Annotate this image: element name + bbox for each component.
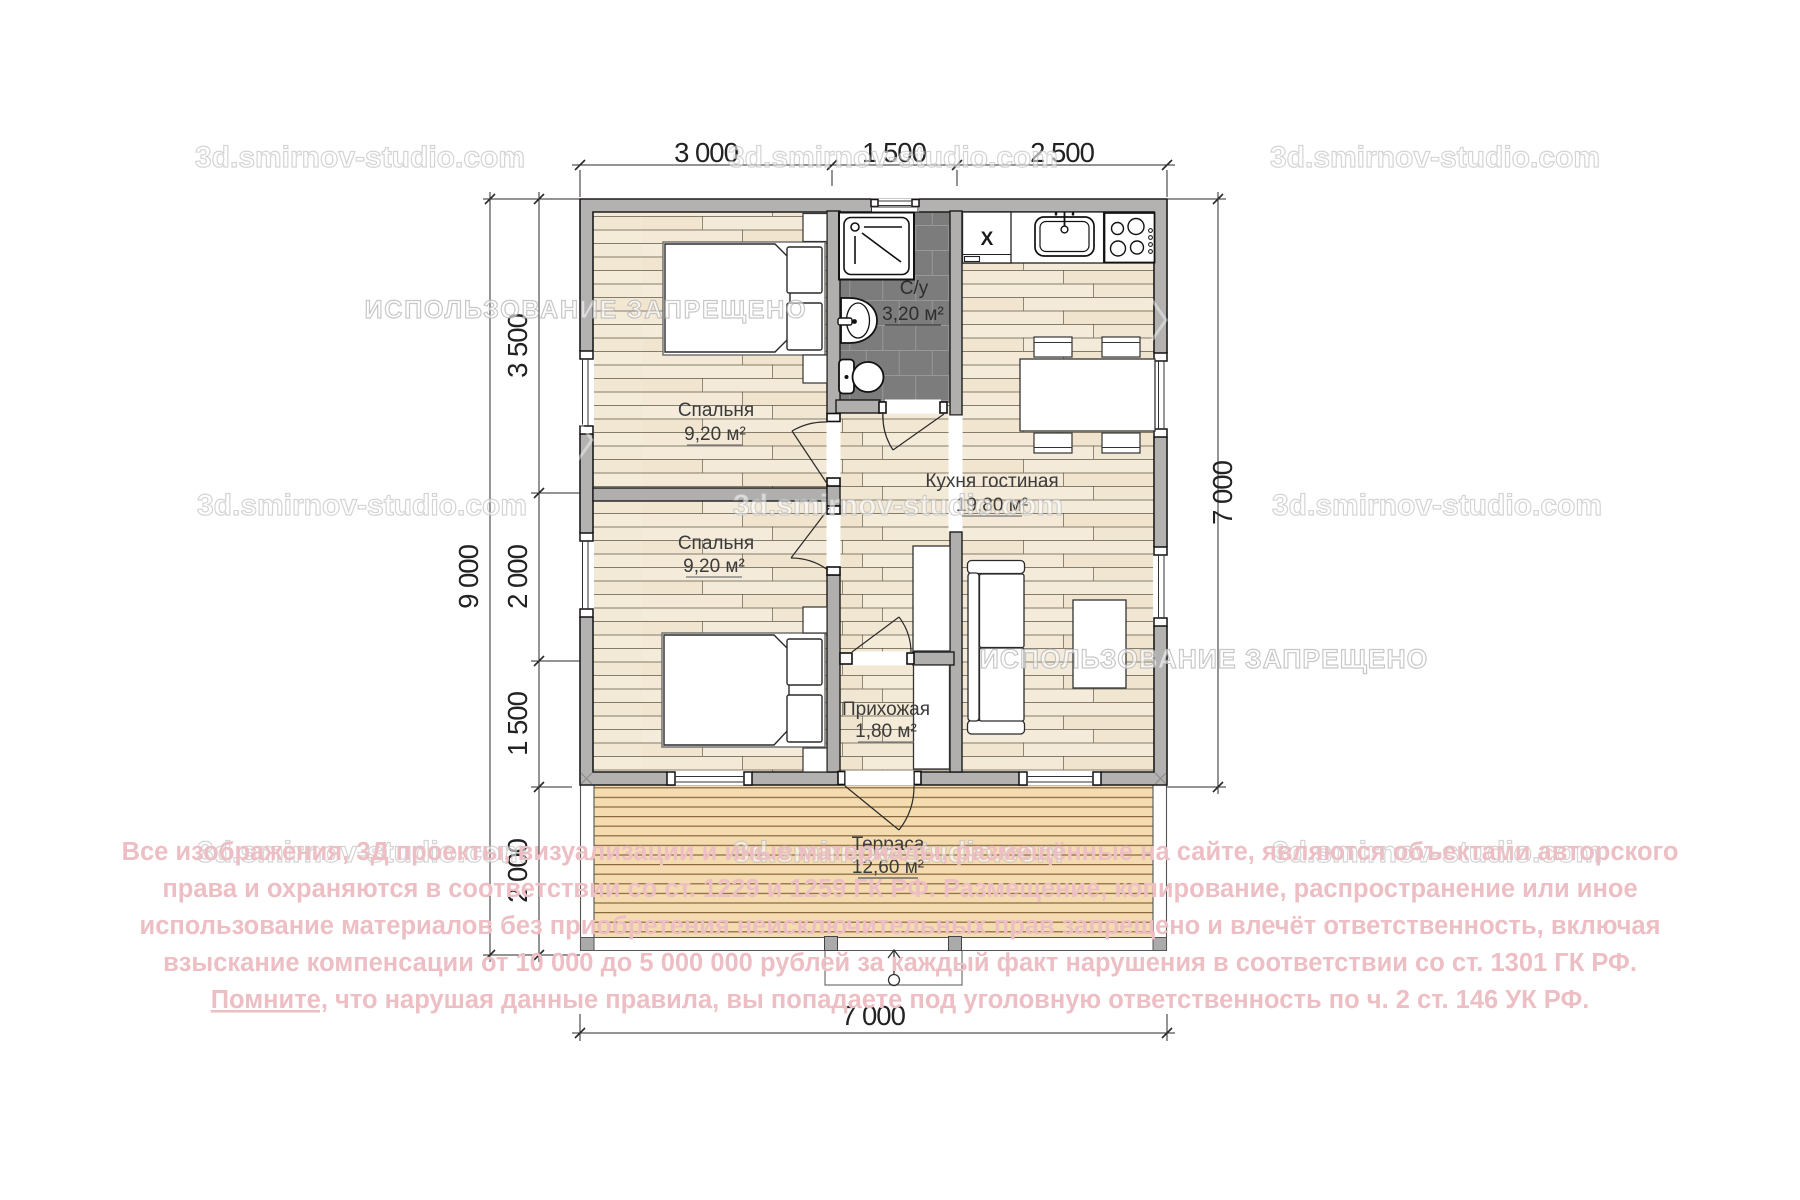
svg-text:9,20 м²: 9,20 м² <box>683 556 745 577</box>
svg-text:Прихожая: Прихожая <box>842 699 930 720</box>
svg-text:9,20 м²: 9,20 м² <box>684 424 746 445</box>
svg-text:3d.smirnov-studio.com: 3d.smirnov-studio.com <box>1272 489 1602 522</box>
svg-text:3d.smirnov-studio.com: 3d.smirnov-studio.com <box>197 489 527 522</box>
svg-text:1 500: 1 500 <box>502 691 533 756</box>
svg-text:взыскание компенсации от 10 00: взыскание компенсации от 10 000 до 5 000… <box>163 949 1637 977</box>
svg-text:Спальня: Спальня <box>678 400 754 421</box>
svg-text:1,80 м²: 1,80 м² <box>855 721 917 742</box>
svg-text:Х: Х <box>981 229 994 250</box>
svg-text:7 000: 7 000 <box>1207 460 1238 525</box>
svg-text:права и охраняются в соответст: права и охраняются в соответствии со ст.… <box>162 875 1637 903</box>
svg-text:использование материалов без п: использование материалов без приобретени… <box>140 912 1661 940</box>
svg-text:3d.smirnov-studio.com: 3d.smirnov-studio.com <box>1270 141 1600 174</box>
svg-text:ИСПОЛЬЗОВАНИЕ ЗАПРЕЩЕНО: ИСПОЛЬЗОВАНИЕ ЗАПРЕЩЕНО <box>365 296 808 324</box>
svg-text:Помните, что нарушая данные пр: Помните, что нарушая данные правила, вы … <box>211 986 1590 1014</box>
svg-text:3d.smirnov-studio.com: 3d.smirnov-studio.com <box>733 489 1063 522</box>
svg-text:9 000: 9 000 <box>453 544 484 609</box>
svg-text:3d.smirnov-studio.com: 3d.smirnov-studio.com <box>728 141 1058 174</box>
svg-text:ИСПОЛЬЗОВАНИЕ ЗАПРЕЩЕНО: ИСПОЛЬЗОВАНИЕ ЗАПРЕЩЕНО <box>980 644 1428 674</box>
svg-text:3,20 м²: 3,20 м² <box>882 304 944 325</box>
svg-text:Спальня: Спальня <box>678 533 754 554</box>
svg-text:3d.smirnov-studio.com: 3d.smirnov-studio.com <box>195 141 525 174</box>
svg-text:С/у: С/у <box>900 278 929 299</box>
svg-text:2 000: 2 000 <box>502 544 533 609</box>
svg-text:Все изображения, 3Д проекты, в: Все изображения, 3Д проекты, визуализаци… <box>122 838 1679 866</box>
